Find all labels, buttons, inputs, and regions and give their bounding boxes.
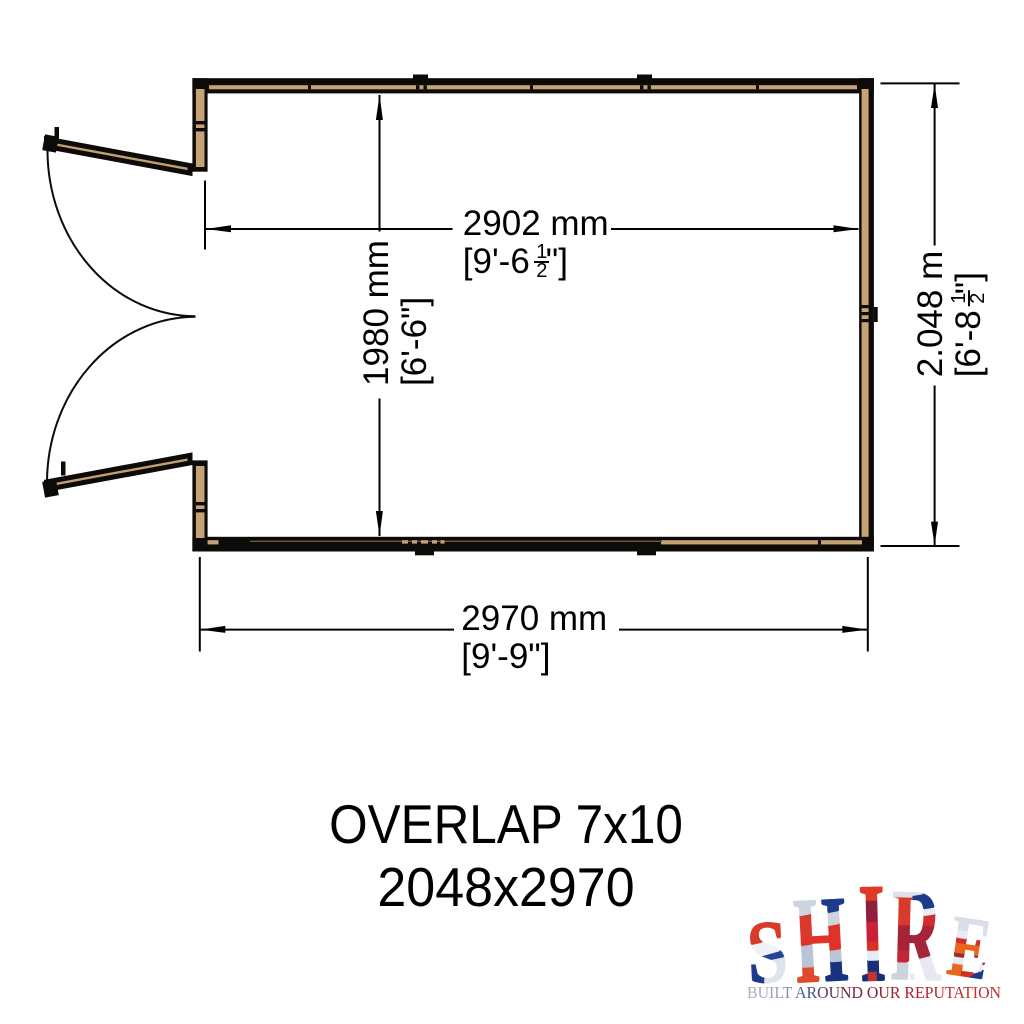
svg-text:BUILT AROUND OUR REPUTATION: BUILT AROUND OUR REPUTATION bbox=[747, 983, 1001, 1002]
